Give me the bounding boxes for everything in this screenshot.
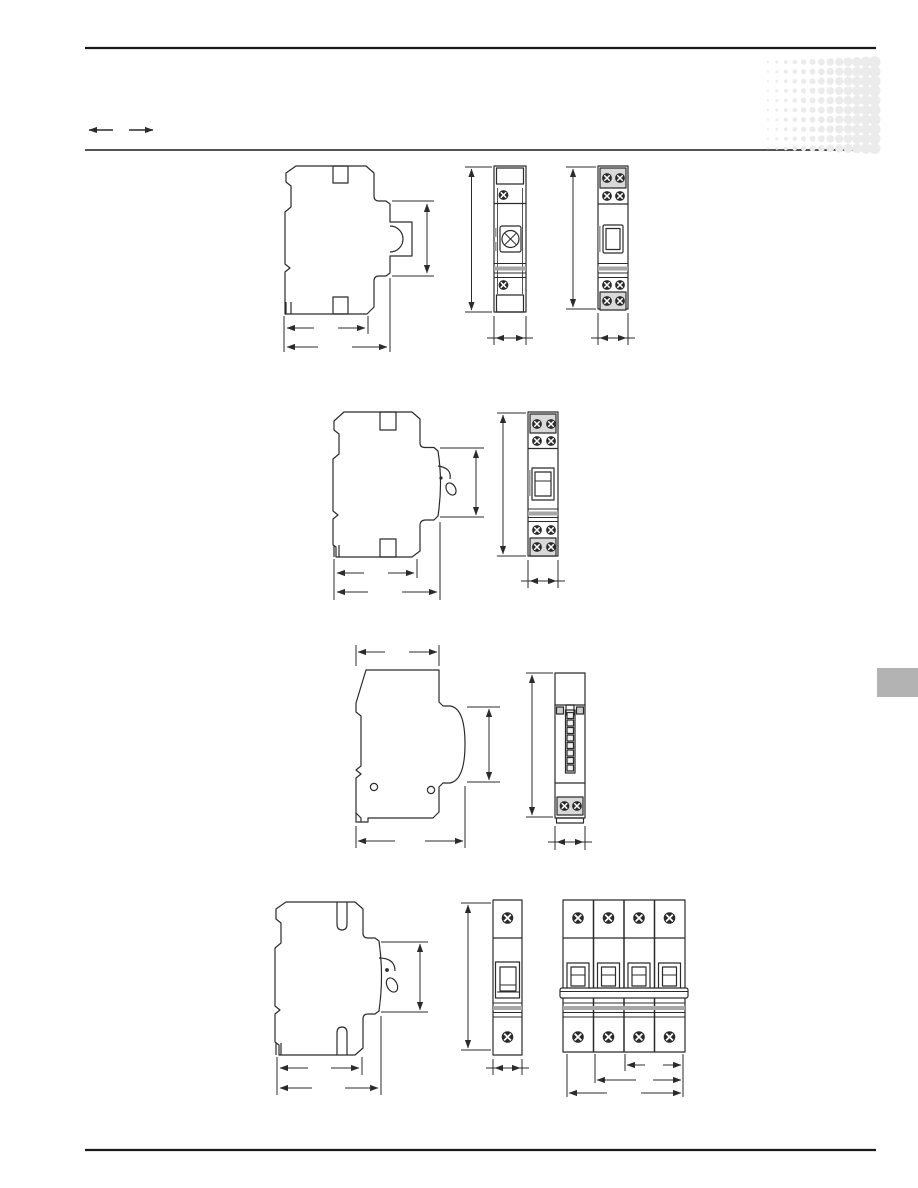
switch-window bbox=[606, 229, 620, 250]
screw-icon bbox=[603, 281, 612, 290]
clip-foot bbox=[286, 302, 291, 314]
pole-dividers bbox=[594, 900, 655, 1052]
top-slot bbox=[337, 902, 347, 930]
screw-icon bbox=[502, 1032, 513, 1043]
screw-icon bbox=[560, 802, 569, 811]
dimension-bottom bbox=[567, 1054, 683, 1097]
tick bbox=[598, 226, 601, 252]
screw-icon bbox=[547, 526, 556, 535]
dimension-right bbox=[467, 707, 500, 782]
module-body-outline bbox=[333, 412, 441, 557]
dimension-bottom bbox=[486, 1059, 529, 1075]
mount-hole bbox=[427, 786, 434, 793]
page-index-tab bbox=[877, 668, 918, 697]
screw-icon bbox=[533, 526, 542, 535]
row3-side-view bbox=[356, 645, 500, 848]
dimension-left bbox=[526, 673, 553, 817]
dimension-bottom bbox=[591, 313, 635, 345]
dimension-bottom bbox=[548, 826, 592, 850]
screw-icon bbox=[664, 1032, 675, 1043]
screw-icon bbox=[502, 913, 513, 924]
dimension-bottom bbox=[521, 560, 565, 588]
toggle-knob bbox=[384, 976, 400, 994]
screw-icon bbox=[616, 281, 625, 290]
carrier-tab bbox=[577, 707, 584, 714]
window-cells bbox=[567, 713, 574, 772]
screw-icon bbox=[499, 191, 508, 200]
module-body-outline bbox=[356, 670, 465, 822]
figure-row2 bbox=[333, 412, 565, 600]
clip-foot bbox=[356, 813, 361, 822]
row4-front-breaker-4pole bbox=[560, 900, 688, 1097]
top-terminal bbox=[497, 168, 524, 184]
toggle-pivot bbox=[385, 968, 389, 972]
mount-hole bbox=[370, 783, 377, 790]
tick bbox=[494, 228, 497, 237]
row3-front-strip-module bbox=[526, 673, 592, 850]
rail-stripe bbox=[528, 512, 558, 516]
screw-icon bbox=[547, 437, 556, 446]
dimension-left bbox=[566, 167, 596, 309]
screw-icon bbox=[634, 1032, 645, 1043]
screw-icon bbox=[603, 192, 612, 201]
figure-row1 bbox=[284, 166, 635, 352]
screw-icon bbox=[573, 913, 584, 924]
toggle-tie-bar bbox=[560, 988, 688, 998]
rail-stripe bbox=[494, 267, 526, 271]
toggle-handle bbox=[500, 967, 516, 991]
dimension-left bbox=[461, 903, 491, 1050]
screw-icon bbox=[616, 192, 625, 201]
row4-side-view bbox=[275, 902, 428, 1095]
row2-side-view bbox=[333, 412, 484, 600]
bottom-terminal bbox=[497, 295, 524, 312]
tick bbox=[528, 470, 531, 496]
top-slot bbox=[333, 166, 348, 183]
carrier-tab bbox=[557, 707, 564, 714]
halftone-pattern bbox=[767, 56, 881, 154]
dimension-right bbox=[440, 448, 484, 517]
figure-row3 bbox=[356, 645, 592, 850]
catalog-page bbox=[0, 0, 918, 1188]
screw-icon bbox=[634, 913, 645, 924]
rail-stripe bbox=[598, 267, 628, 271]
screw-icon bbox=[616, 174, 625, 183]
top-slot bbox=[380, 412, 396, 430]
dimension-left bbox=[497, 413, 526, 556]
dimension-left bbox=[465, 167, 492, 312]
tick bbox=[494, 242, 497, 251]
tab-arc bbox=[390, 226, 403, 252]
dimension-bottom bbox=[487, 316, 533, 345]
row1-front-indicator-module bbox=[465, 166, 533, 345]
rail-stripe bbox=[493, 1006, 522, 1010]
dimension-top bbox=[356, 645, 439, 666]
rocker bbox=[535, 472, 551, 496]
dimension-bottom bbox=[334, 522, 440, 600]
screw-icon bbox=[533, 437, 542, 446]
bottom-slot bbox=[337, 1027, 347, 1055]
screw-icon bbox=[616, 297, 625, 306]
figure-row4 bbox=[275, 900, 688, 1097]
bottom-slot bbox=[380, 539, 396, 557]
dimension-bottom bbox=[356, 786, 465, 848]
screw-icon bbox=[533, 420, 542, 429]
dimension-right bbox=[381, 942, 428, 1012]
screw-icon bbox=[603, 297, 612, 306]
row2-front-rocker-module bbox=[497, 412, 565, 588]
screw-icon bbox=[573, 1032, 584, 1043]
toggle-pivot bbox=[439, 476, 442, 479]
toggle-knob bbox=[444, 481, 458, 497]
screw-icon bbox=[603, 174, 612, 183]
bottom-slot bbox=[333, 297, 348, 314]
module-body-outline bbox=[285, 166, 412, 314]
screw-icon bbox=[547, 543, 556, 552]
screw-icon bbox=[547, 420, 556, 429]
rail-stripe bbox=[563, 1006, 685, 1010]
screw-icon bbox=[603, 1032, 614, 1043]
row1-side-view bbox=[284, 166, 434, 352]
row1-front-switch-module bbox=[566, 166, 635, 345]
technical-drawings-canvas bbox=[0, 0, 918, 1188]
screw-icon bbox=[533, 543, 542, 552]
screw-icon bbox=[664, 913, 675, 924]
base-foot bbox=[557, 818, 584, 823]
module-body-outline bbox=[275, 902, 382, 1055]
screw-icon bbox=[603, 913, 614, 924]
screw-icon bbox=[499, 281, 508, 290]
dimension-right bbox=[392, 201, 434, 276]
row4-front-breaker-1pole bbox=[461, 900, 529, 1075]
screw-icon bbox=[573, 802, 582, 811]
